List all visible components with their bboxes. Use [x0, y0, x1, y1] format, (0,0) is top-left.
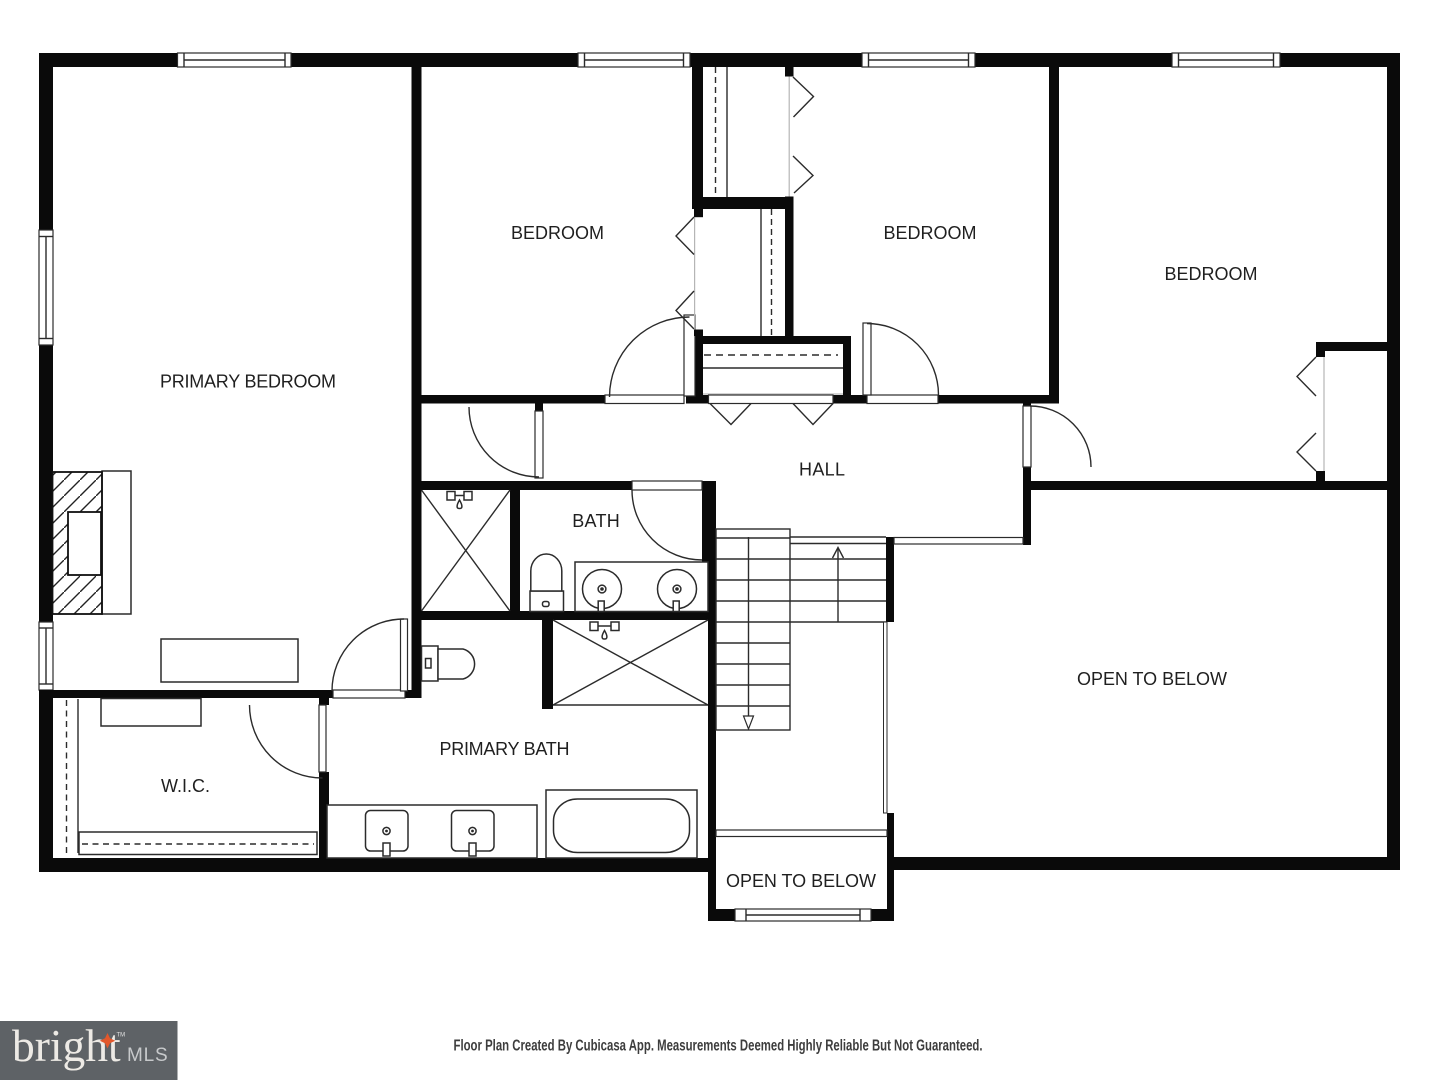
- svg-text:BEDROOM: BEDROOM: [511, 223, 604, 243]
- svg-text:BEDROOM: BEDROOM: [1165, 264, 1258, 284]
- svg-text:HALL: HALL: [799, 460, 845, 480]
- svg-text:W.I.C.: W.I.C.: [161, 776, 210, 796]
- svg-text:TM: TM: [117, 1033, 126, 1039]
- svg-text:BEDROOM: BEDROOM: [884, 223, 977, 243]
- svg-text:PRIMARY BATH: PRIMARY BATH: [440, 739, 570, 759]
- svg-text:OPEN TO BELOW: OPEN TO BELOW: [1077, 669, 1227, 689]
- svg-text:bright: bright: [12, 1020, 121, 1071]
- svg-text:BATH: BATH: [572, 511, 620, 531]
- svg-text:Floor Plan Created By Cubicasa: Floor Plan Created By Cubicasa App. Meas…: [454, 1038, 983, 1055]
- svg-text:PRIMARY BEDROOM: PRIMARY BEDROOM: [160, 372, 336, 392]
- svg-text:MLS: MLS: [127, 1045, 168, 1066]
- svg-text:OPEN TO BELOW: OPEN TO BELOW: [726, 871, 876, 891]
